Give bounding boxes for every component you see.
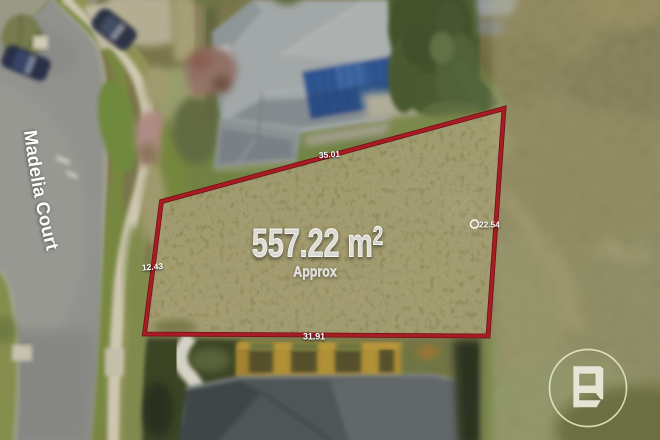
svg-text:12.43: 12.43 [141, 261, 163, 273]
svg-text:31.91: 31.91 [303, 332, 325, 342]
svg-text:Approx: Approx [293, 263, 337, 279]
svg-text:557.22 m2: 557.22 m2 [252, 221, 383, 265]
svg-text:35.01: 35.01 [319, 149, 341, 160]
svg-text:22.54: 22.54 [479, 219, 500, 229]
